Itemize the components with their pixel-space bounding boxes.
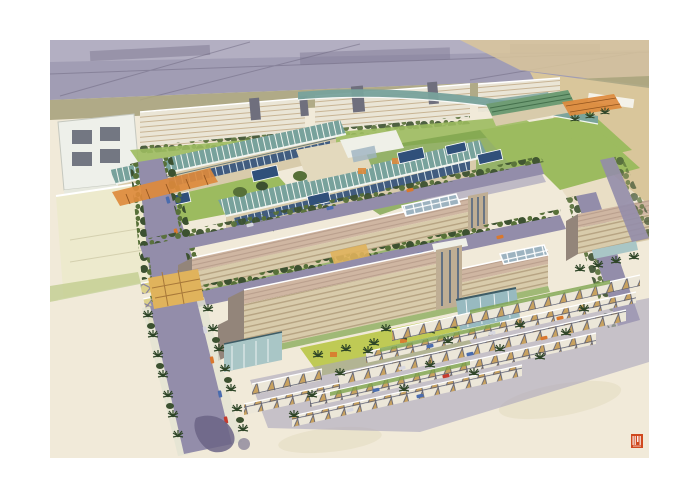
watercolor-rendering (0, 0, 700, 500)
campus-masterplan-illustration (0, 0, 700, 500)
signature-stamp (631, 434, 643, 448)
